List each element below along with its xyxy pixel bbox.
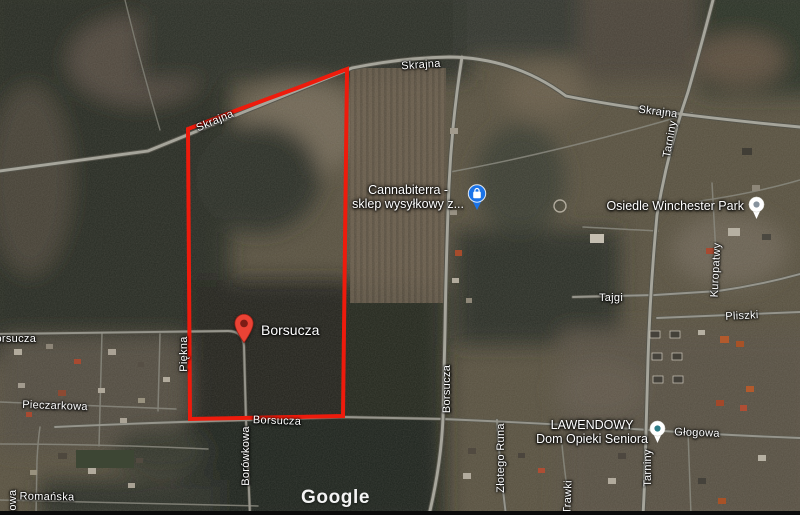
poi-label-line: Osiedle Winchester Park — [606, 199, 744, 213]
street-label-zlotego-runa: Złotego Runa — [495, 423, 507, 493]
street-label-glogowa: Głogowa — [674, 426, 720, 440]
street-label-tajgi: Tajgi — [599, 292, 623, 304]
google-maps-satellite-view[interactable]: Skrajna Skrajna Skrajna Tarniny Borsucza… — [0, 0, 800, 515]
street-label-borsucza-west: Borsucza — [0, 333, 36, 345]
neighborhood-pin-icon[interactable] — [748, 196, 765, 220]
poi-label-cannabiterra[interactable]: Cannabiterra - sklep wysyłkowy z... — [352, 183, 464, 211]
street-label-piekna: Piękna — [178, 336, 190, 371]
poi-label-line: sklep wysyłkowy z... — [352, 197, 464, 211]
bottom-letterbox-bar — [0, 511, 800, 515]
red-map-pin[interactable] — [233, 312, 255, 344]
poi-label-lawendowy[interactable]: LAWENDOWY Dom Opieki Seniora — [536, 418, 648, 446]
poi-label-line: Cannabiterra - — [352, 183, 464, 197]
street-label-borsucza-south: Borsucza — [253, 414, 302, 428]
pin-street-label: Borsucza — [261, 322, 319, 338]
street-label-romanska: Romańska — [19, 491, 74, 504]
poi-label-line: Dom Opieki Seniora — [536, 432, 648, 446]
street-label-tarniny-south: Tarniny — [642, 449, 654, 487]
google-logo[interactable]: Google — [301, 487, 370, 509]
poi-label-line: LAWENDOWY — [536, 418, 648, 432]
street-label-borowkowa: Borówkowa — [240, 426, 252, 486]
poi-label-winchester-park[interactable]: Osiedle Winchester Park — [606, 199, 744, 213]
street-label-borsucza-vertical: Borsucza — [441, 365, 453, 413]
street-label-trawki: Trawki — [561, 480, 574, 514]
street-label-pliszki: Pliszki — [725, 309, 759, 323]
shopping-bag-pin-icon[interactable] — [467, 184, 487, 211]
neighborhood-pin-icon[interactable] — [649, 420, 666, 444]
street-label-pieczarkowa: Pieczarkowa — [22, 399, 88, 413]
